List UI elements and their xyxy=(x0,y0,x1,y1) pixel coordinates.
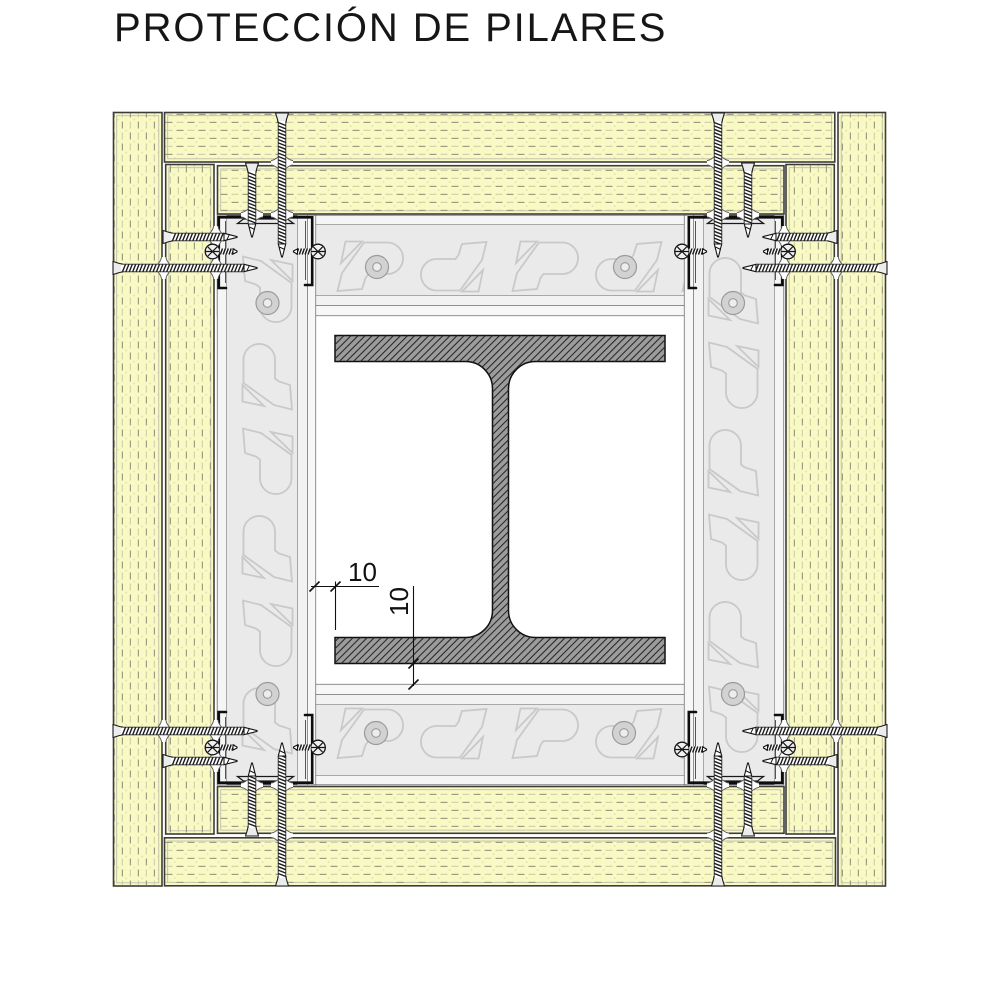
svg-text:10: 10 xyxy=(348,557,377,587)
svg-text:PROTECCIÓN DE PILARES: PROTECCIÓN DE PILARES xyxy=(114,5,667,50)
svg-text:10: 10 xyxy=(384,587,414,616)
